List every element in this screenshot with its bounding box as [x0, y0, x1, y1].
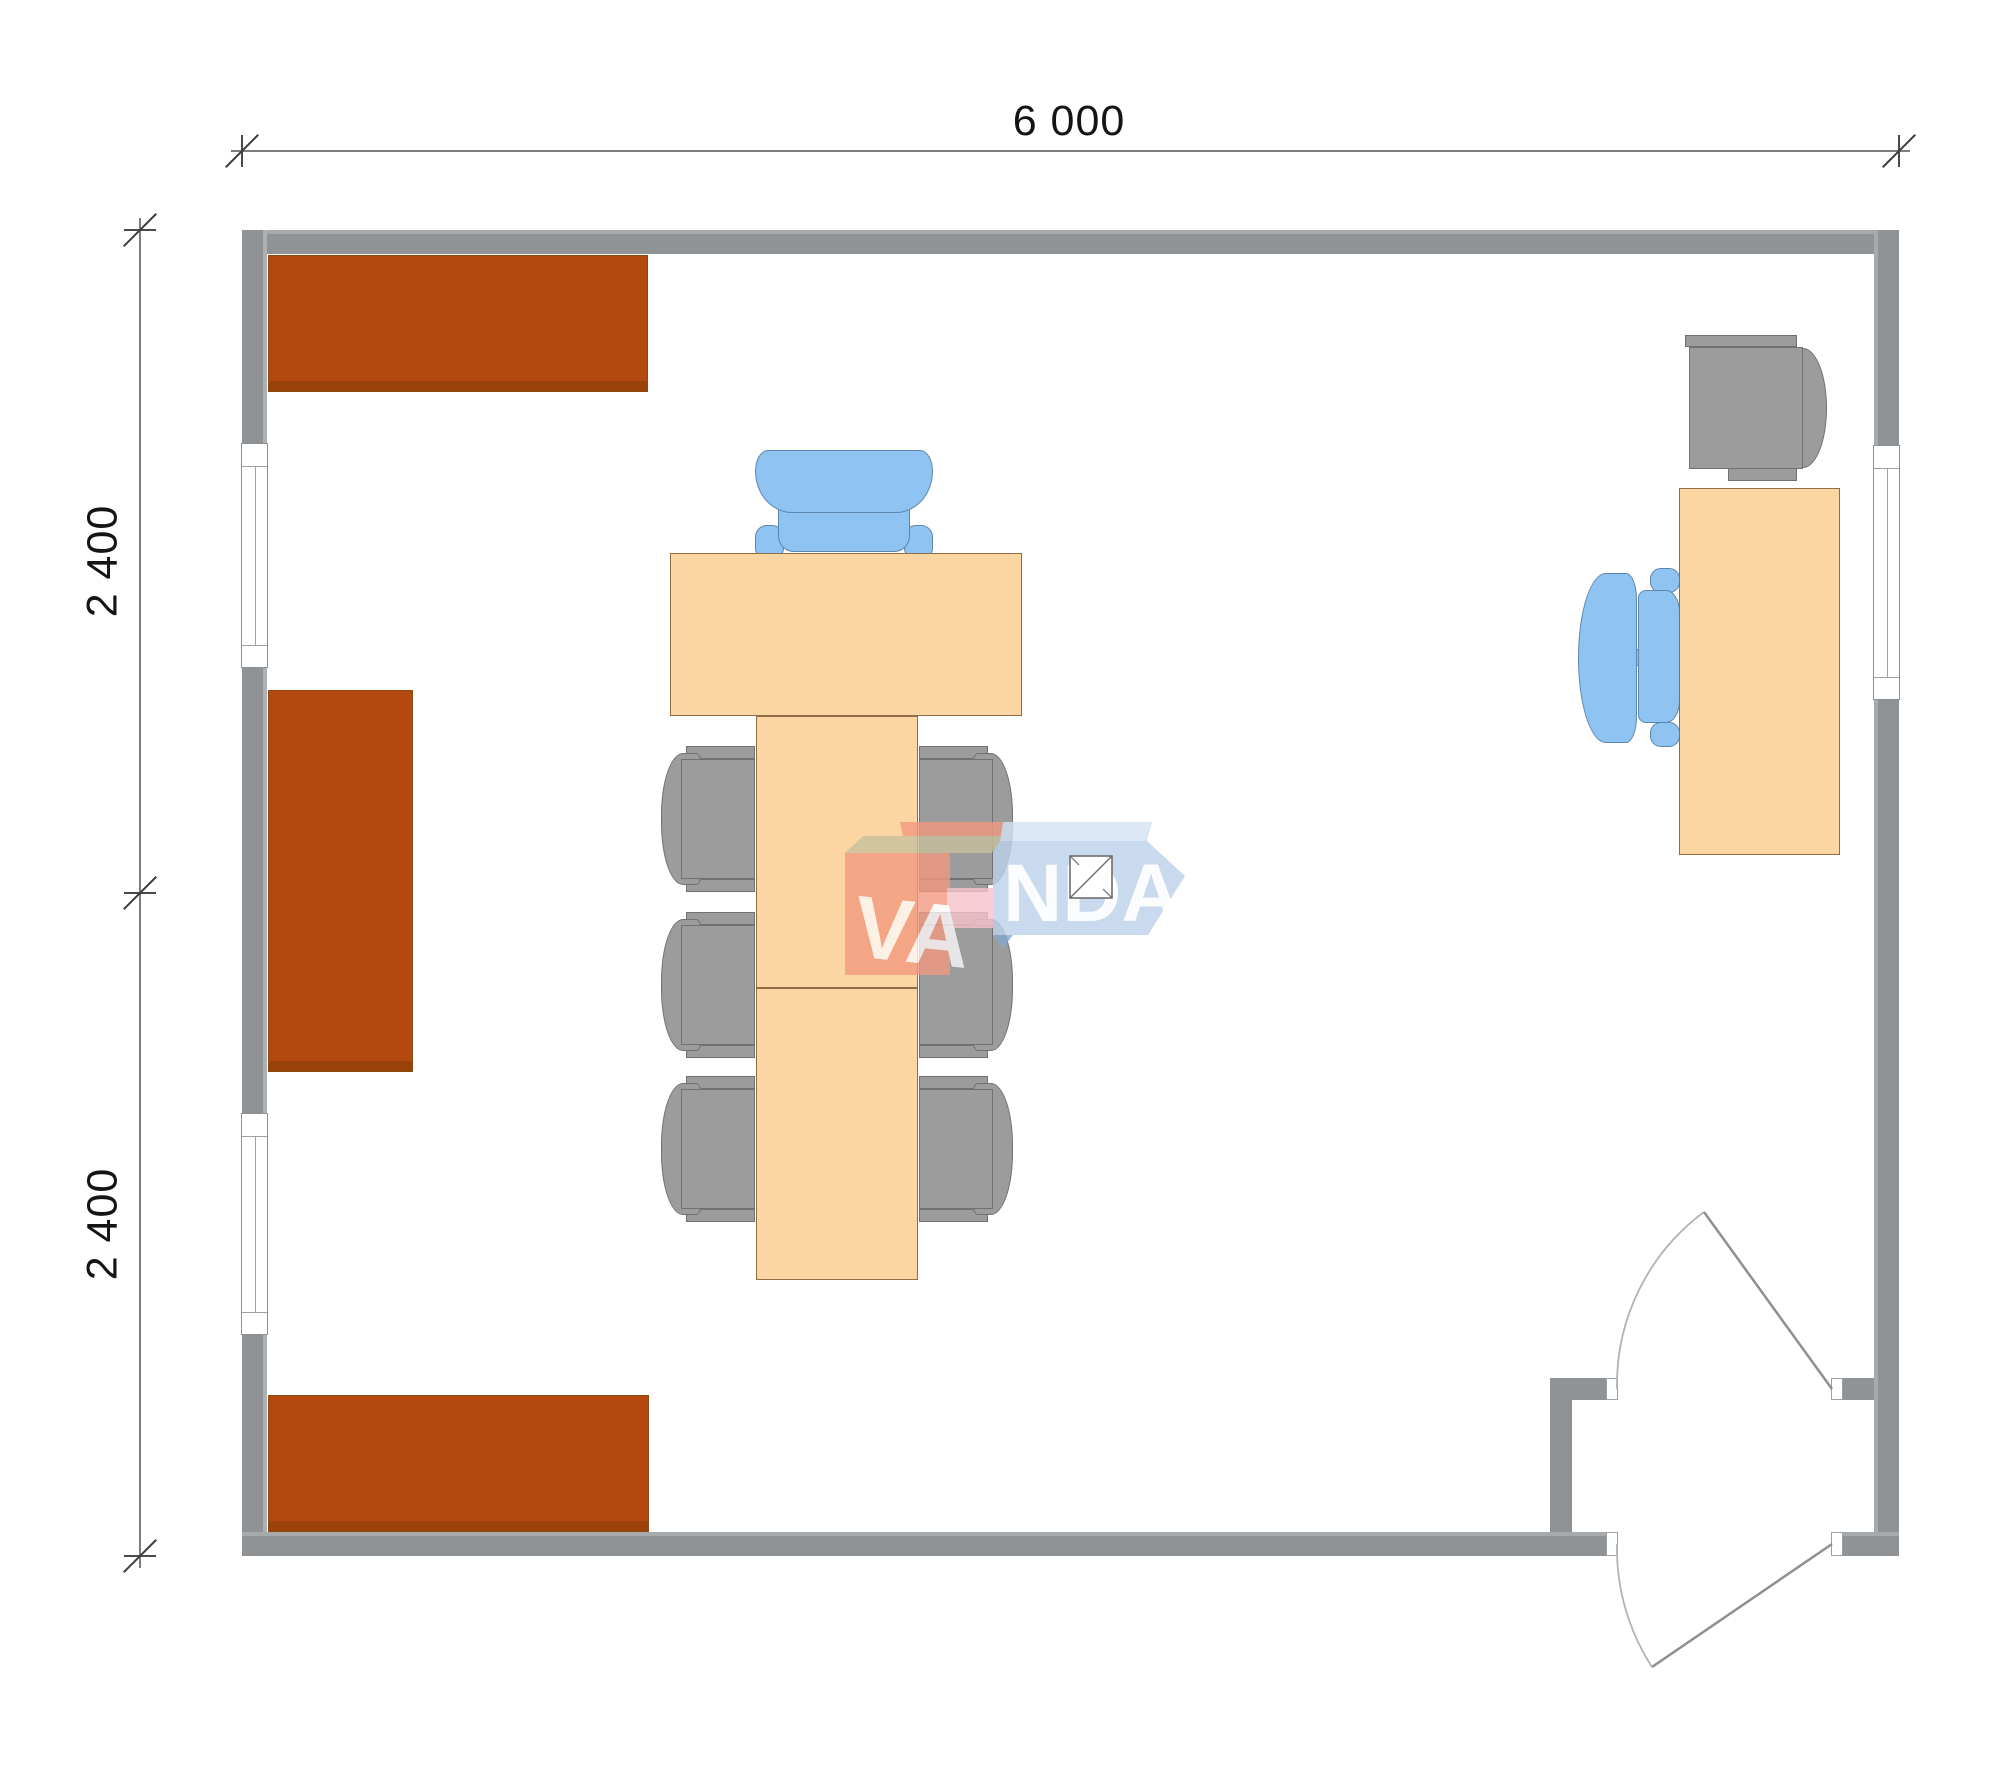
window-glass-line — [255, 1136, 256, 1313]
chair-blue-desk — [1578, 568, 1680, 747]
chair-seat — [681, 925, 755, 1045]
window-right — [1873, 445, 1900, 700]
watermark-checkbox-icon — [1070, 856, 1112, 898]
watermark-text-va: VA — [850, 876, 975, 975]
wall-partition-horizontal-right — [1843, 1378, 1874, 1400]
vanda-watermark: VA NDA — [840, 815, 1200, 975]
floor-plan-canvas: 6 000 2 400 2 400 — [0, 0, 2000, 1773]
dimension-line-top — [231, 150, 1910, 152]
watermark-ribbon-body — [993, 841, 1185, 948]
door-jamb — [1831, 1378, 1843, 1400]
conference-table-module-2 — [756, 988, 918, 1280]
chair-gray-left-1 — [661, 746, 756, 892]
wall-bottom-right-segment — [1843, 1532, 1899, 1556]
cabinet-middle-left — [268, 690, 413, 1072]
conference-head-table — [670, 553, 1022, 716]
window-left-upper — [241, 443, 268, 668]
wall-partition-vertical — [1550, 1378, 1572, 1532]
chair-gray-left-2 — [661, 912, 756, 1058]
watermark-box-front-face — [845, 853, 950, 975]
door-jamb — [1606, 1532, 1618, 1556]
office-desk-right — [1679, 488, 1840, 855]
dimension-label-height-top: 2 400 — [79, 505, 128, 618]
chair-gray-desk — [1679, 335, 1827, 481]
chair-armrest — [1650, 722, 1680, 747]
door-jamb — [1831, 1532, 1843, 1556]
wall-right — [1874, 230, 1899, 1556]
inner-door-leaf — [1704, 1212, 1832, 1389]
chair-seat — [681, 1089, 755, 1209]
vanda-watermark-graphic: VA NDA — [840, 815, 1200, 975]
wall-top — [242, 230, 1899, 254]
window-glass-line — [1887, 468, 1888, 678]
chair-backrest — [755, 450, 933, 513]
window-glass-line — [255, 466, 256, 646]
watermark-pink-strip — [947, 888, 993, 928]
window-left-lower — [241, 1113, 268, 1335]
chair-seat — [1638, 590, 1680, 723]
watermark-text-nda: NDA — [1003, 848, 1181, 939]
wall-bottom-left-segment — [242, 1532, 1606, 1556]
watermark-ribbon-fold — [993, 935, 1013, 948]
chair-blue-executive — [755, 450, 933, 560]
watermark-box-back-edge — [900, 822, 1009, 836]
chair-backrest — [1578, 573, 1637, 743]
chair-seat — [919, 1089, 993, 1209]
watermark-box-top-face — [845, 836, 1009, 853]
cabinet-bottom-left — [268, 1395, 649, 1532]
chair-gray-right-3 — [918, 1076, 1013, 1222]
wall-left — [242, 230, 267, 1556]
watermark-ribbon-top-face — [1000, 822, 1152, 841]
entrance-door-leaf — [1652, 1544, 1832, 1667]
chair-seat — [681, 759, 755, 879]
inner-door-swing-arc — [1617, 1212, 1704, 1389]
dimension-label-height-bottom: 2 400 — [79, 1168, 128, 1281]
cabinet-top-left — [268, 255, 648, 392]
door-jamb — [1606, 1378, 1618, 1400]
chair-gray-left-3 — [661, 1076, 756, 1222]
chair-armrest — [1685, 335, 1797, 347]
entrance-door-swing-arc — [1617, 1544, 1652, 1667]
dimension-label-width: 6 000 — [1013, 97, 1126, 146]
chair-seat — [1689, 347, 1803, 469]
